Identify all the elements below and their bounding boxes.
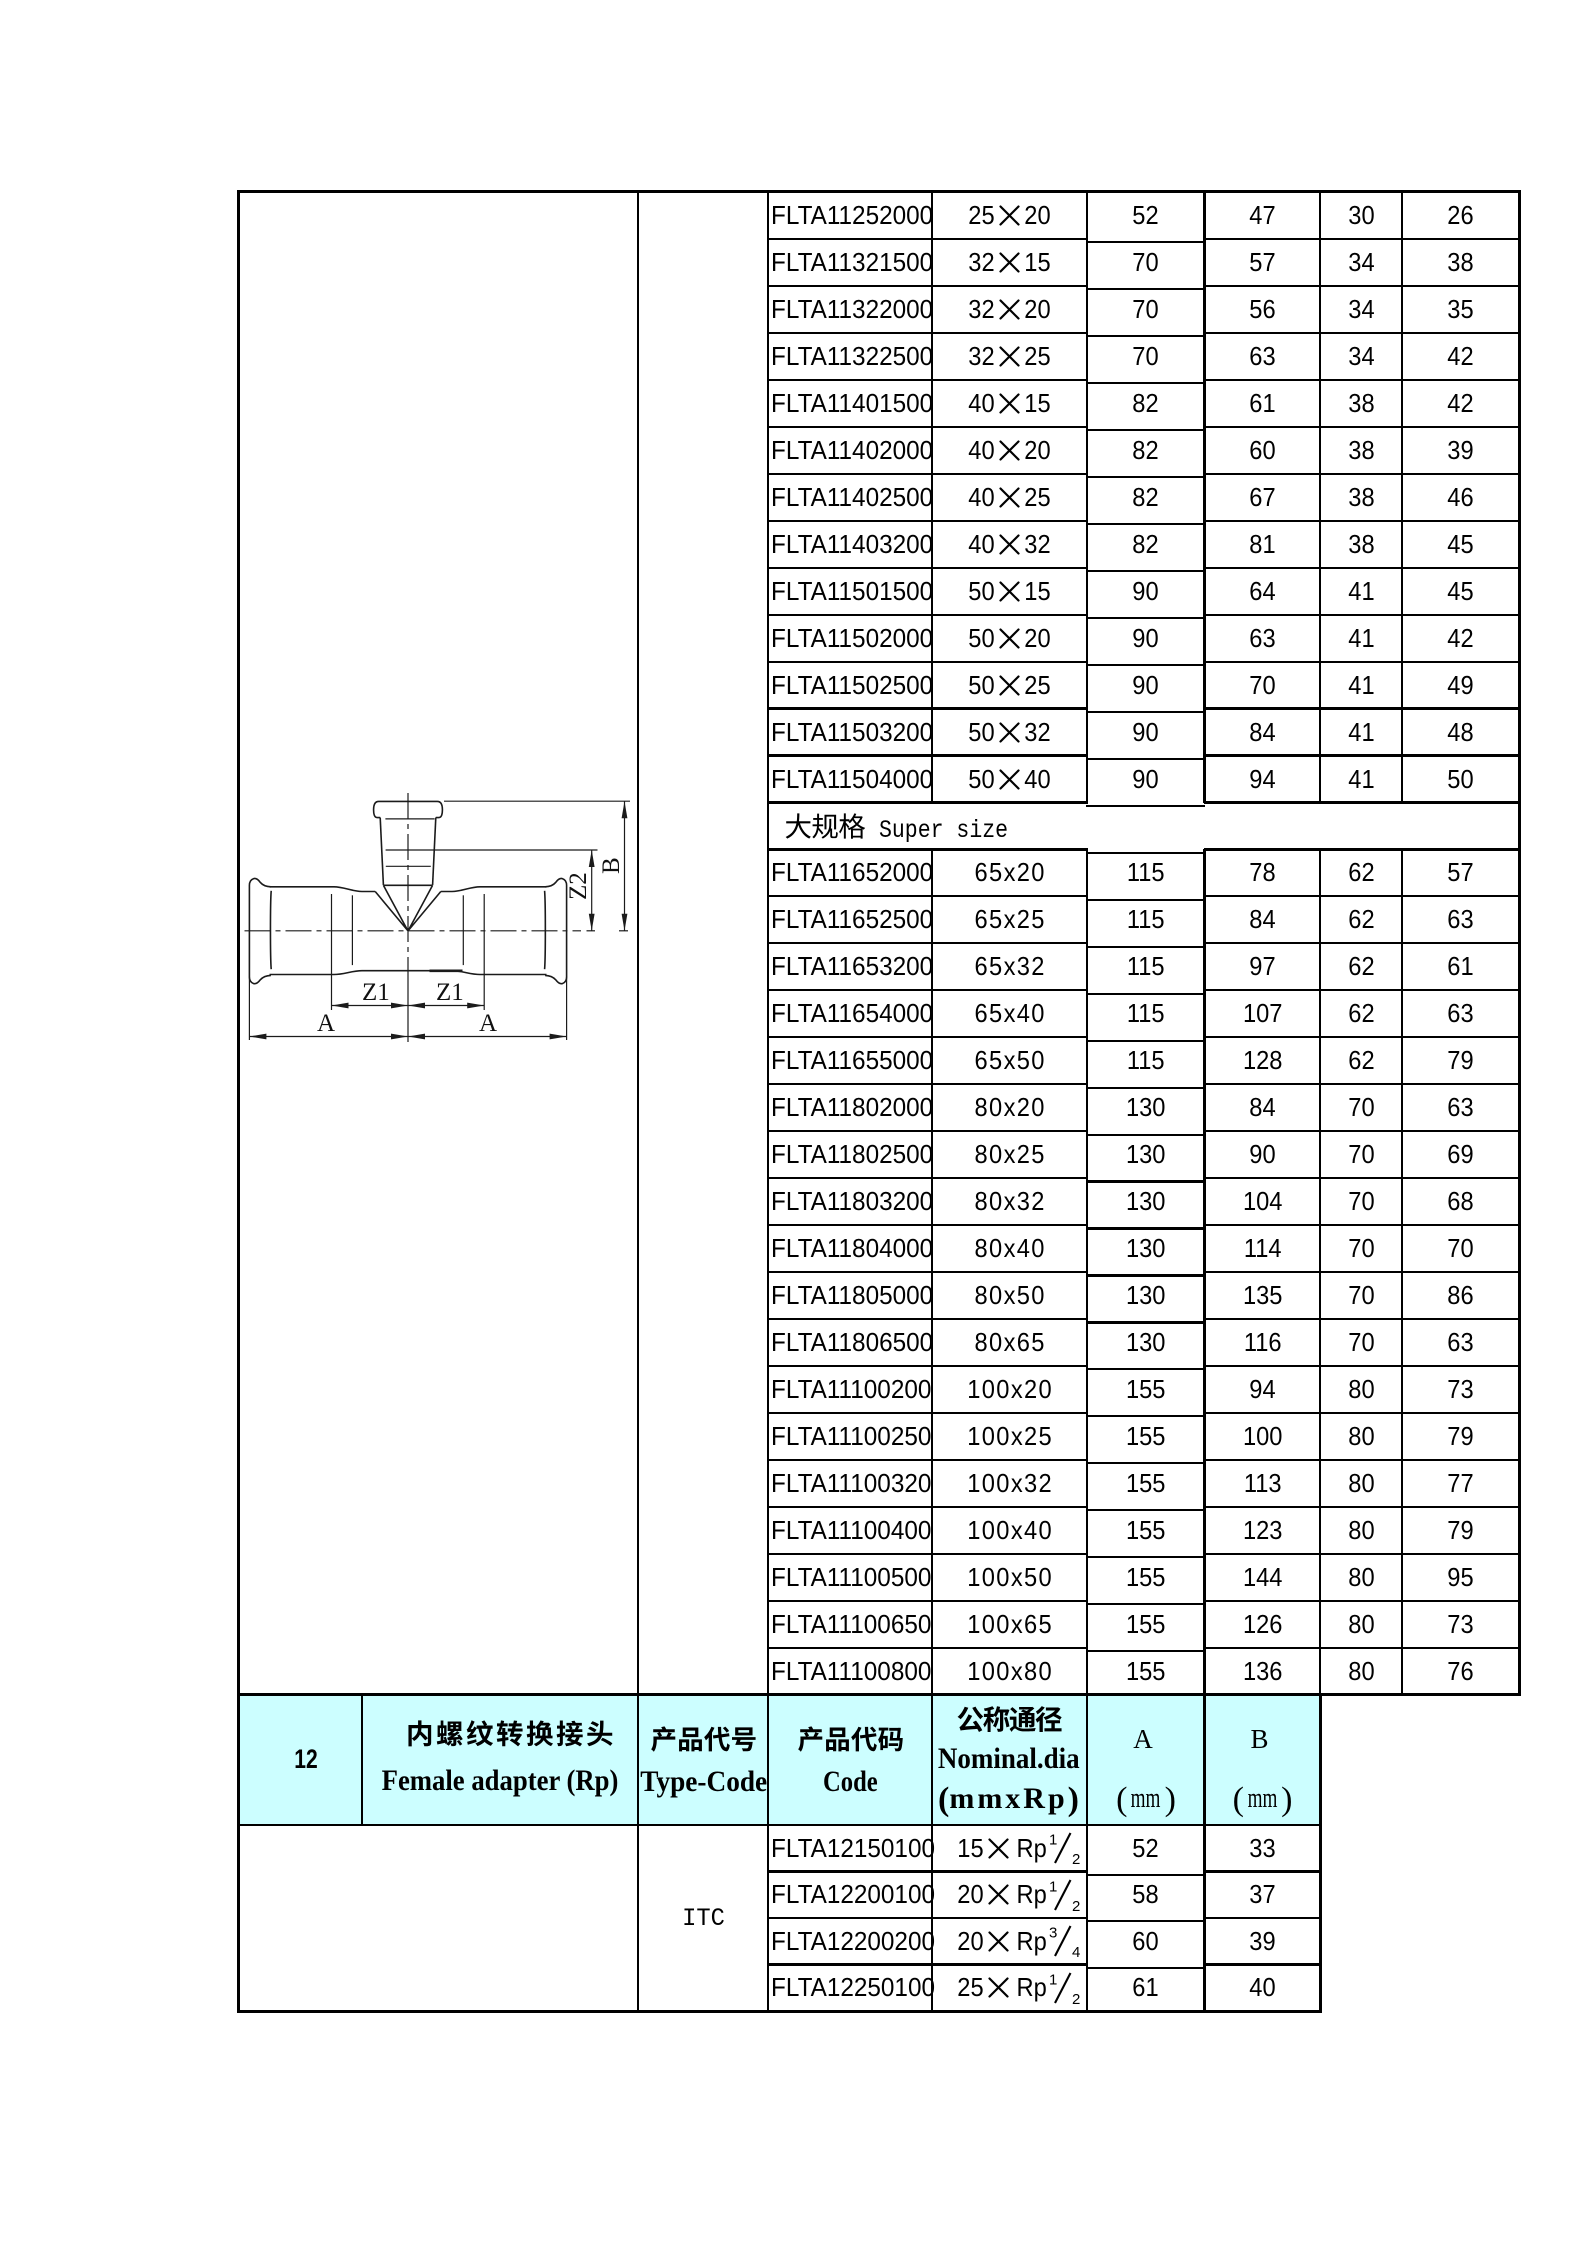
svg-text:A: A — [479, 1010, 497, 1037]
svg-text:B: B — [598, 857, 625, 874]
svg-text:Z1: Z1 — [436, 979, 464, 1006]
svg-text:Z2: Z2 — [565, 872, 592, 900]
svg-text:A: A — [317, 1010, 335, 1037]
svg-text:Z1: Z1 — [362, 979, 390, 1006]
